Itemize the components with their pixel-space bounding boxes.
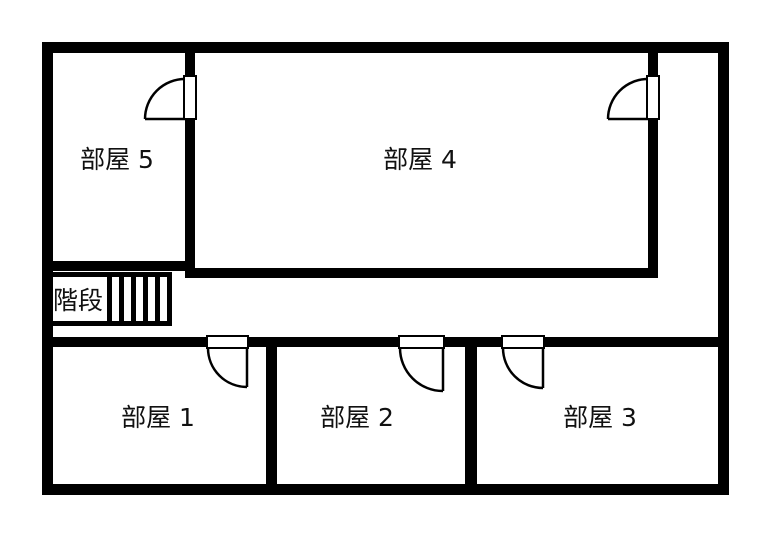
door-room-1: [207, 336, 248, 387]
door-room-4-swing-arc: [608, 79, 648, 119]
room-4-label: 部屋 4: [383, 145, 457, 174]
outer-wall-bottom: [42, 484, 729, 495]
door-room-5-panel: [184, 76, 196, 119]
room-labels: 部屋 5 部屋 4 階段 部屋 1 部屋 2 部屋 3: [53, 145, 637, 432]
stairs-outline-right: [167, 272, 172, 326]
room-3-label: 部屋 3: [563, 403, 637, 432]
stairs-label: 階段: [53, 286, 103, 315]
door-room-2-swing-arc: [400, 348, 443, 391]
stairs-outline-top: [53, 272, 172, 277]
door-room-3-panel: [502, 336, 544, 348]
wall-room4-bottom: [185, 268, 658, 278]
stairs-step-line: [143, 272, 148, 326]
outer-wall-left: [42, 42, 53, 495]
door-room-5: [145, 76, 196, 119]
door-room-1-swing-arc: [208, 348, 247, 387]
door-room-4-panel: [647, 76, 659, 119]
stairs-step-line: [155, 272, 160, 326]
door-room-5-swing-arc: [145, 79, 185, 119]
door-room-2-panel: [399, 336, 444, 348]
stairs-step-line: [131, 272, 136, 326]
room-2-label: 部屋 2: [320, 403, 394, 432]
stairs-outline-bottom: [53, 321, 172, 326]
room-1-label: 部屋 1: [121, 403, 195, 432]
outer-wall-right: [718, 42, 729, 495]
floor-plan-canvas: 部屋 5 部屋 4 階段 部屋 1 部屋 2 部屋 3: [0, 0, 771, 537]
wall-lower-rooms-top: [53, 337, 718, 347]
room-5-label: 部屋 5: [80, 145, 154, 174]
floor-plan-diagram: 部屋 5 部屋 4 階段 部屋 1 部屋 2 部屋 3: [0, 0, 771, 537]
wall-room2-room3-divider: [465, 347, 477, 484]
stairs-step-line: [119, 272, 124, 326]
wall-room5-bottom: [53, 261, 195, 271]
wall-room1-room2-divider: [266, 347, 277, 484]
door-room-1-panel: [207, 336, 248, 348]
outer-wall-top: [42, 42, 729, 53]
door-room-3-swing-arc: [503, 348, 543, 388]
door-room-3: [502, 336, 544, 388]
stairs-step-line: [107, 272, 112, 326]
door-room-2: [399, 336, 444, 391]
door-room-4: [608, 76, 659, 119]
